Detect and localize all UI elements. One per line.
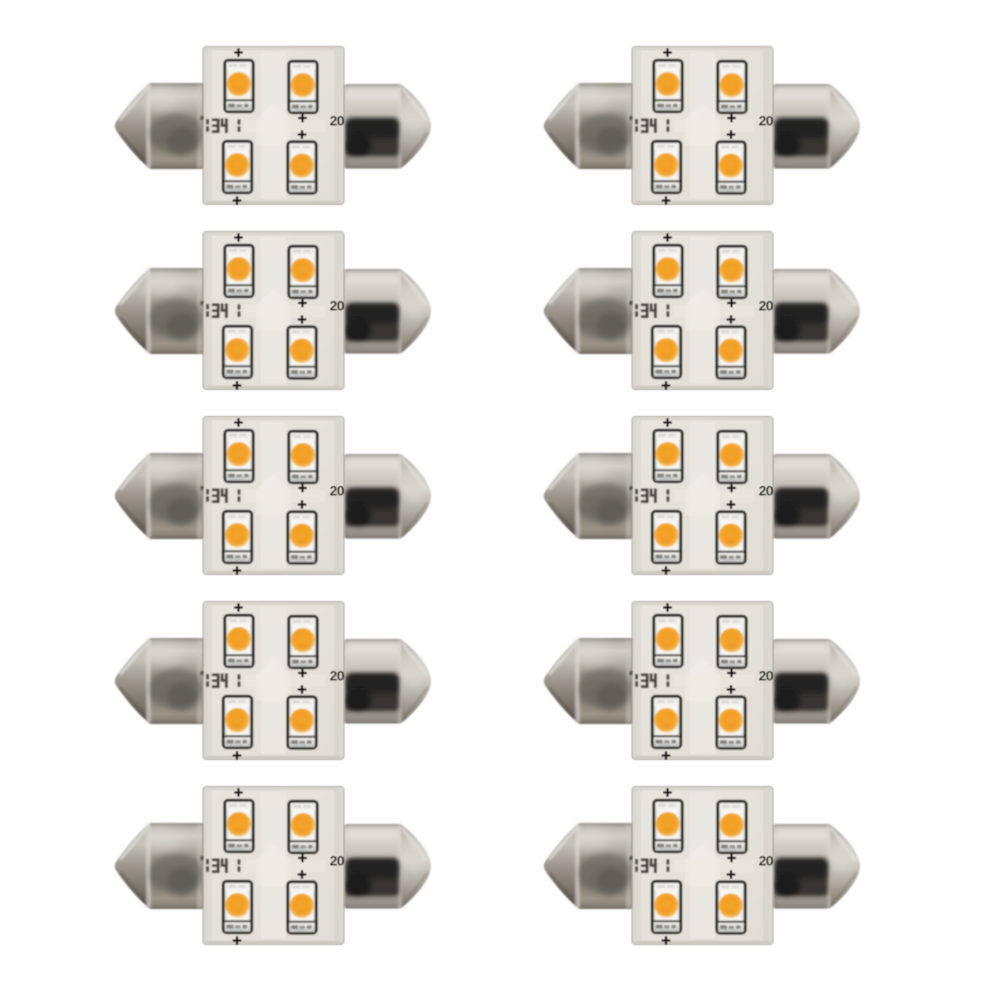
svg-text:20: 20 <box>759 113 774 129</box>
svg-text:20: 20 <box>330 113 345 129</box>
svg-text:20: 20 <box>759 668 774 684</box>
svg-text:20: 20 <box>330 668 345 684</box>
svg-text:20: 20 <box>759 298 774 314</box>
svg-text:20: 20 <box>330 298 345 314</box>
svg-text:20: 20 <box>759 853 774 869</box>
svg-text:20: 20 <box>330 483 345 499</box>
svg-text:20: 20 <box>330 853 345 869</box>
svg-text:20: 20 <box>759 483 774 499</box>
